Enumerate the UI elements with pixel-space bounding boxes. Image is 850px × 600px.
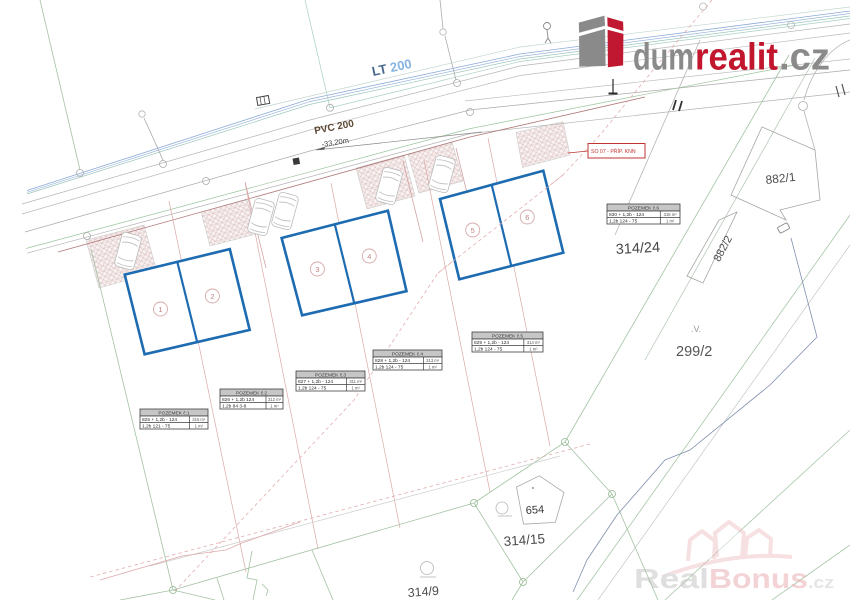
- svg-text:1 m²: 1 m²: [195, 424, 204, 429]
- svg-text:316 m²: 316 m²: [664, 212, 678, 217]
- svg-text:1: 1: [158, 305, 162, 314]
- svg-text:SO 07 - PŘÍP. KNN: SO 07 - PŘÍP. KNN: [591, 147, 636, 155]
- svg-text:1 m²: 1 m²: [666, 219, 675, 224]
- svg-text:POZEMEK č.2: POZEMEK č.2: [236, 390, 268, 396]
- svg-text:1,2b 121 - 75: 1,2b 121 - 75: [142, 424, 171, 430]
- svg-text:825 + 1,2b - 124: 825 + 1,2b - 124: [142, 417, 177, 423]
- svg-text:POZEMEK č.5: POZEMEK č.5: [492, 333, 524, 339]
- svg-text:828 + 1,2b - 124: 828 + 1,2b - 124: [375, 358, 410, 364]
- svg-text:1,2b 124 - 75: 1,2b 124 - 75: [298, 386, 327, 392]
- svg-text:313 m²: 313 m²: [426, 358, 440, 363]
- svg-text:.cz: .cz: [808, 573, 834, 592]
- svg-text:654: 654: [525, 504, 544, 517]
- svg-text:realit: realit: [695, 37, 778, 79]
- svg-text:POZEMEK č.1: POZEMEK č.1: [158, 410, 190, 416]
- svg-text:1,2b 124 - 75: 1,2b 124 - 75: [609, 219, 638, 225]
- svg-text:POZEMEK č.6: POZEMEK č.6: [628, 205, 660, 211]
- svg-text:POZEMEK č.3: POZEMEK č.3: [315, 372, 347, 378]
- svg-text:314/9: 314/9: [407, 584, 439, 600]
- svg-text:1,2b 84 3-8: 1,2b 84 3-8: [222, 404, 247, 410]
- svg-text:Bonus: Bonus: [709, 563, 808, 594]
- svg-text:314/24: 314/24: [615, 240, 660, 258]
- svg-text:826 + 1,2b 124: 826 + 1,2b 124: [222, 397, 254, 403]
- svg-text:312 m²: 312 m²: [268, 397, 282, 402]
- svg-text:1 m²: 1 m²: [351, 386, 360, 391]
- svg-text:314/15: 314/15: [503, 531, 545, 549]
- svg-text:1 m²: 1 m²: [428, 365, 437, 370]
- svg-text:2: 2: [210, 292, 214, 301]
- svg-text:315 m²: 315 m²: [192, 417, 206, 422]
- svg-text:1,2b 124 - 75: 1,2b 124 - 75: [474, 347, 503, 353]
- svg-text:829 + 1,2b - 124: 829 + 1,2b - 124: [474, 340, 509, 346]
- svg-text:4: 4: [367, 252, 371, 261]
- svg-text:3: 3: [315, 265, 319, 274]
- svg-text:dum: dum: [633, 37, 694, 79]
- svg-text:827 + 1,2b - 124: 827 + 1,2b - 124: [298, 379, 333, 385]
- svg-text:6: 6: [525, 213, 529, 222]
- svg-text:.cz: .cz: [779, 37, 830, 79]
- svg-text:311 m²: 311 m²: [349, 379, 362, 384]
- svg-text:1 m²: 1 m²: [270, 404, 279, 409]
- svg-text:Real: Real: [634, 563, 709, 594]
- svg-text:830 + 1,2b - 124: 830 + 1,2b - 124: [609, 212, 644, 218]
- svg-text:299/2: 299/2: [676, 344, 712, 360]
- svg-text:.V.: .V.: [691, 324, 701, 334]
- svg-text:314 m²: 314 m²: [527, 340, 541, 345]
- svg-text:POZEMEK č.4: POZEMEK č.4: [392, 351, 424, 357]
- svg-text:5: 5: [471, 226, 475, 235]
- svg-text:1 m²: 1 m²: [529, 347, 538, 352]
- svg-text:1,2b 124 - 75: 1,2b 124 - 75: [375, 365, 404, 371]
